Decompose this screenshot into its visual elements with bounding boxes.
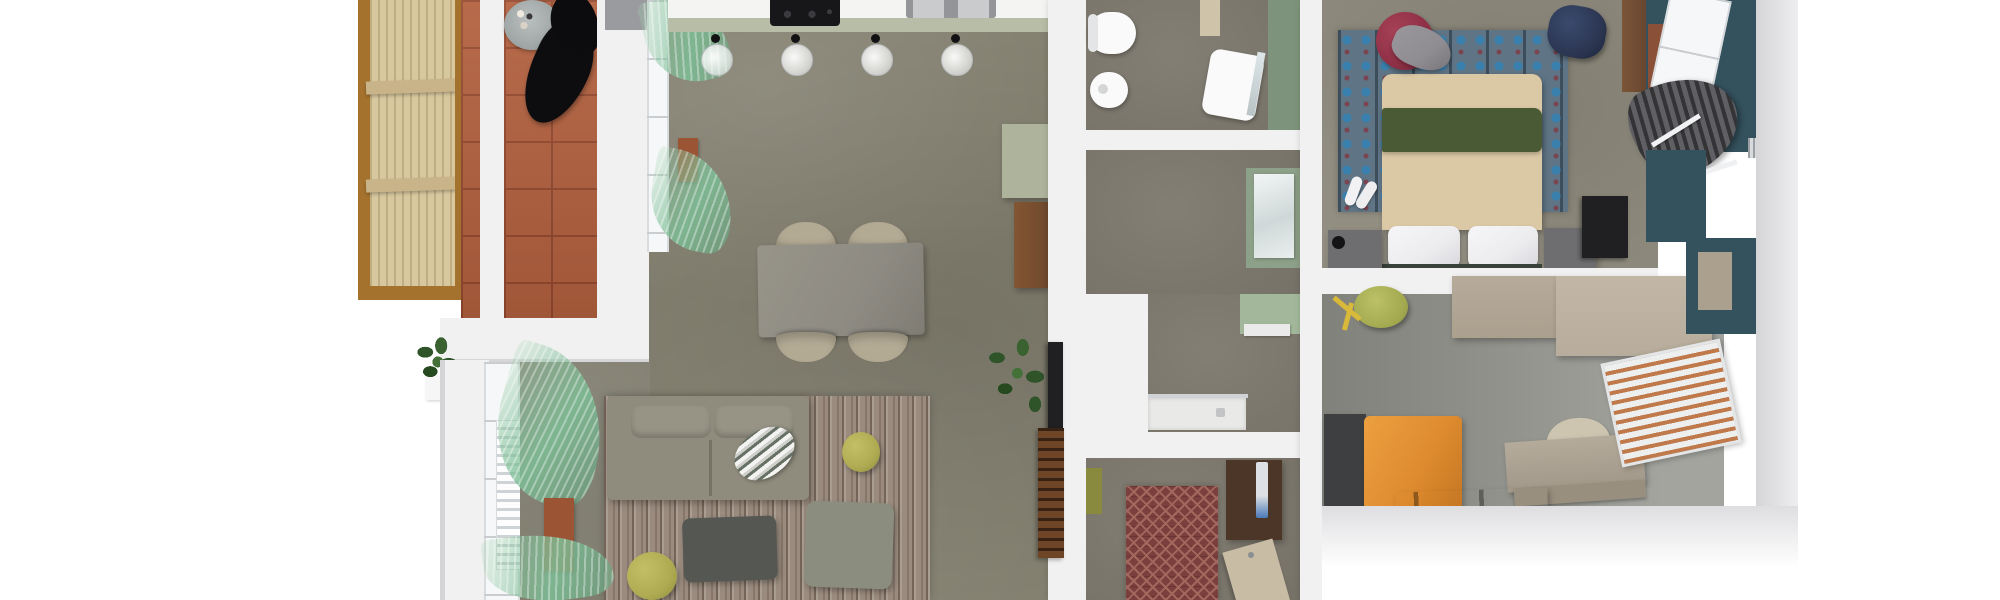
kids-dark-headboard-unit	[1324, 414, 1366, 510]
sofa-back-cushion	[631, 406, 711, 438]
kitchen-sink	[906, 0, 996, 18]
center-wall-thick-block	[1086, 294, 1148, 446]
pendant-lamp-globe	[781, 44, 813, 76]
shower-lower-wall	[1086, 432, 1320, 458]
entry-wardrobe	[1226, 460, 1282, 540]
olive-mat	[1086, 468, 1102, 514]
bottom-outer-wall	[1322, 506, 1798, 600]
bidet-drain	[1098, 84, 1108, 94]
shower-ledge	[1244, 324, 1290, 336]
pergola-frame-left	[358, 0, 370, 300]
double-bed-duvet	[1382, 74, 1542, 230]
outer-wall-left	[440, 360, 489, 600]
balcony-tile-strip	[461, 0, 480, 320]
sofa-seat-split	[709, 440, 712, 496]
pergola-frame-bottom	[358, 286, 461, 300]
wood-sideboard	[1014, 202, 1048, 288]
toilet-tank	[1088, 14, 1098, 52]
nightstand-lamp	[1332, 236, 1345, 249]
balcony-living-wall	[597, 0, 649, 320]
teal-wall-mid	[1646, 150, 1706, 242]
olive-pouf	[842, 432, 880, 472]
olive-cylinder-pouf	[1354, 286, 1408, 328]
bed-pillow-left	[1388, 226, 1460, 268]
bed-pillow-right	[1468, 226, 1538, 268]
green-blanket	[1382, 108, 1542, 152]
square-ottoman	[804, 500, 895, 589]
kitchen-counter-edge	[668, 18, 1048, 32]
mirror-panel	[1254, 174, 1294, 258]
olive-pouf	[627, 552, 677, 600]
outer-wall-right	[1756, 0, 1798, 520]
bedroom-wall-tv	[1582, 196, 1628, 258]
wardrobe-unit	[1452, 276, 1556, 338]
bathroom-beige-cabinet	[1200, 0, 1220, 36]
living-room-plant	[982, 332, 1050, 418]
pendant-lamp-globe	[701, 44, 733, 76]
shower-drain	[1216, 408, 1225, 417]
pendant-lamp-globe	[861, 44, 893, 76]
wall-tv-panel	[1048, 342, 1063, 428]
pendant-lamp-icon	[871, 34, 880, 43]
bistro-tableware	[514, 6, 536, 32]
kids-wardrobe-top	[1698, 252, 1732, 310]
entry-door-handle	[1248, 552, 1254, 558]
shower-tray	[1148, 398, 1246, 430]
bathroom-sage-wall	[1268, 0, 1302, 132]
bidet	[1090, 72, 1128, 108]
sage-cabinet	[1002, 124, 1048, 198]
chevron-runner-rug	[1126, 486, 1218, 600]
pergola-slat-screen	[370, 0, 456, 298]
induction-hob	[770, 0, 840, 26]
slatted-tv-bench	[1038, 428, 1064, 558]
intercom-panel	[1256, 462, 1268, 518]
pendant-lamp-globe	[941, 44, 973, 76]
pendant-lamp-icon	[711, 34, 720, 43]
pendant-lamp-icon	[951, 34, 960, 43]
balcony-divider-wall	[480, 0, 504, 320]
floorplan-render	[0, 0, 2000, 600]
bathroom-lower-wall	[1086, 130, 1302, 150]
coffee-table	[682, 515, 778, 582]
dining-table	[757, 243, 925, 338]
pendant-lamp-icon	[791, 34, 800, 43]
hall-bedroom-wall	[1300, 0, 1322, 600]
